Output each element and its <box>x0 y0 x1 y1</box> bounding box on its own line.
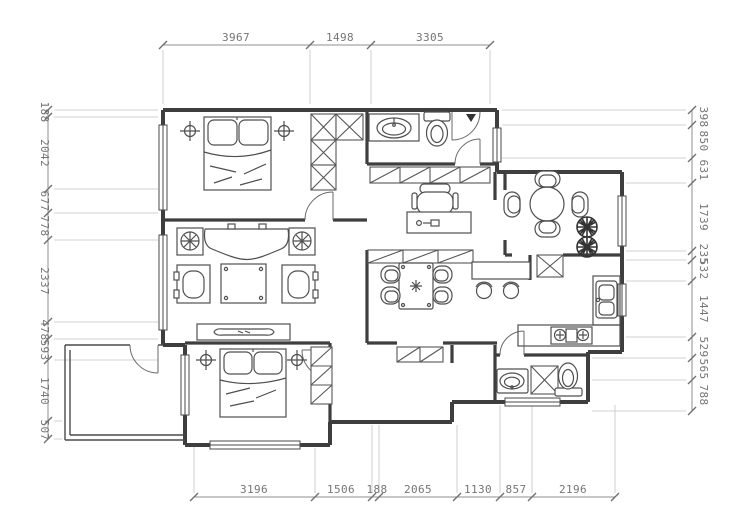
living-room <box>174 224 318 340</box>
dim-left-5: 478 <box>38 319 51 340</box>
cabinet-hatch-icon <box>370 167 490 183</box>
ceiling-light-icon <box>196 350 216 370</box>
tea-room <box>504 171 597 257</box>
vanity-sink-icon <box>369 114 419 141</box>
desk-icon <box>407 212 471 233</box>
dim-right-6: 1447 <box>697 295 710 323</box>
bedroom-1 <box>180 117 294 190</box>
side-table-plant-icon <box>289 228 315 255</box>
bar-stool-icon <box>476 282 492 298</box>
side-table-plant-icon <box>177 228 203 255</box>
wardrobe-hatch-icon <box>311 347 332 404</box>
floor-plan-svg: 3967 1498 3305 3196 1506 188 2065 1130 8… <box>0 0 740 514</box>
dim-right-2: 631 <box>697 159 710 180</box>
sofa-icon <box>204 224 288 260</box>
dim-top-0: 3967 <box>222 31 250 44</box>
armchair-icon <box>282 265 318 303</box>
bathroom-1 <box>369 112 450 146</box>
chair-icon <box>381 287 400 304</box>
round-table-icon <box>530 187 564 221</box>
double-bed-icon <box>204 117 271 190</box>
cabinet-hatch-icon <box>397 347 443 362</box>
dim-bottom-2: 188 <box>366 483 387 496</box>
gas-stove-icon <box>551 327 592 344</box>
washing-machine-icon <box>531 366 558 394</box>
window-icon <box>181 355 189 415</box>
balcony <box>65 345 185 440</box>
study <box>407 184 471 233</box>
bar-stool-icon <box>503 282 519 298</box>
dim-right-3: 1739 <box>697 203 710 231</box>
door-swing-icon <box>455 139 480 164</box>
door-swing-icon <box>305 192 333 220</box>
toilet-icon <box>555 363 582 396</box>
dim-right-9: 788 <box>697 384 710 405</box>
window-icon <box>210 441 300 449</box>
dim-bottom-6: 2196 <box>559 483 587 496</box>
kitchen-sink-icon <box>596 281 617 318</box>
dim-right-7: 529 <box>697 336 710 357</box>
window-icon <box>159 125 167 210</box>
dim-bottom-1: 1506 <box>327 483 355 496</box>
door-swing-icon <box>500 331 524 355</box>
dim-left-0: 188 <box>38 101 51 122</box>
dim-right-5: 532 <box>697 258 710 279</box>
ceiling-light-icon <box>274 121 294 141</box>
double-bed-icon <box>220 349 286 417</box>
entry-marker-icon <box>466 114 476 122</box>
coffee-table-icon <box>221 264 266 303</box>
dim-left-4: 2337 <box>38 267 51 295</box>
window-icon <box>618 284 626 316</box>
plant-icon <box>577 217 597 237</box>
dim-left-2: 677 <box>38 190 51 211</box>
office-chair-icon <box>412 184 458 214</box>
dim-right-0: 398 <box>697 106 710 127</box>
bedroom-2 <box>196 349 307 417</box>
dining-table-icon <box>399 263 433 309</box>
armchair-icon <box>174 265 210 303</box>
tv-cabinet-icon <box>197 324 290 340</box>
plant-icon <box>577 237 597 257</box>
ceiling-light-icon <box>180 121 200 141</box>
dim-bottom-0: 3196 <box>240 483 268 496</box>
chair-icon <box>433 266 452 283</box>
dim-left-1: 2042 <box>38 139 51 167</box>
dim-bottom-5: 857 <box>505 483 526 496</box>
floor-plan-canvas: 3967 1498 3305 3196 1506 188 2065 1130 8… <box>0 0 740 514</box>
dining-area <box>381 262 530 309</box>
window-icon <box>493 128 501 162</box>
dim-top-1: 1498 <box>326 31 354 44</box>
window-icon <box>505 398 560 406</box>
dim-right-1: 850 <box>697 130 710 151</box>
window-icon <box>159 235 167 330</box>
toilet-icon <box>424 112 450 146</box>
chair-icon <box>504 192 520 217</box>
dim-top-2: 3305 <box>416 31 444 44</box>
chair-icon <box>433 287 452 304</box>
wardrobe-icon <box>311 114 363 190</box>
bar-counter-icon <box>472 262 530 279</box>
dim-right-8: 565 <box>697 358 710 379</box>
dim-bottom-3: 2065 <box>404 483 432 496</box>
window-icon <box>618 196 626 246</box>
chair-icon <box>572 192 588 217</box>
dim-left-3: 778 <box>38 215 51 236</box>
chair-icon <box>535 221 560 237</box>
door-swing-icon <box>452 112 480 140</box>
ceiling-light-icon <box>287 350 307 370</box>
dim-bottom-4: 1130 <box>464 483 492 496</box>
dim-left-6: 593 <box>38 339 51 360</box>
cabinet-x-icon <box>537 255 563 277</box>
dim-left-7: 1740 <box>38 377 51 405</box>
door-swing-icon <box>130 345 158 373</box>
chair-icon <box>381 266 400 283</box>
sink-icon <box>497 369 528 393</box>
cabinets <box>311 114 563 404</box>
cabinet-hatch-icon <box>368 250 473 263</box>
dim-left-8: 507 <box>38 419 51 440</box>
kitchen <box>518 276 620 346</box>
chair-icon <box>535 171 560 187</box>
